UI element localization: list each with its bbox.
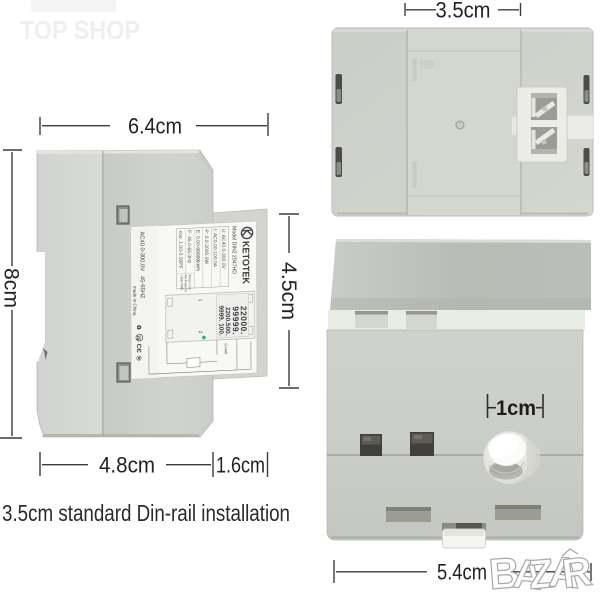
svg-text:1: 1 xyxy=(197,299,203,302)
svg-text:Ⓜ: Ⓜ xyxy=(135,356,142,361)
svg-text:U: AC40.0-300.0V: U: AC40.0-300.0V xyxy=(220,228,226,269)
svg-text:99999.: 99999. xyxy=(231,306,241,335)
svg-text:P: 0.0-3000.0W: P: 0.0-3000.0W xyxy=(203,229,209,264)
svg-text:25: 25 xyxy=(135,335,141,341)
svg-text:4.5cm: 4.5cm xyxy=(277,262,300,320)
svg-text:I: AC0.00-100.0A: I: AC0.00-100.0A xyxy=(212,229,218,268)
svg-text:1cm: 1cm xyxy=(496,397,536,420)
svg-text:8cm: 8cm xyxy=(0,268,23,308)
svg-text:R: R xyxy=(559,548,594,597)
svg-text:9999. 100.: 9999. 100. xyxy=(217,305,224,336)
svg-text:made in China: made in China xyxy=(132,286,137,316)
svg-text:♻: ♻ xyxy=(135,325,142,331)
svg-text:4.8cm: 4.8cm xyxy=(99,453,155,478)
svg-text:E: 0.00-99999kWh: E: 0.00-99999kWh xyxy=(194,230,200,272)
svg-text:TOP SHOP: TOP SHOP xyxy=(20,15,140,45)
svg-text:F: 45.0-65.0Hz: F: 45.0-65.0Hz xyxy=(186,230,192,264)
svg-text:5.4cm: 5.4cm xyxy=(437,560,487,585)
svg-text:CЄ: CЄ xyxy=(135,344,142,354)
svg-text:3.5cm standard Din-rail instal: 3.5cm standard Din-rail installation xyxy=(2,500,290,526)
svg-text:Model DIN2 2047HD: Model DIN2 2047HD xyxy=(231,226,237,274)
svg-text:(Load): (Load) xyxy=(224,343,228,354)
svg-text:cos: 1.00-0.00PF: cos: 1.00-0.00PF xyxy=(177,231,183,269)
svg-text:6.4cm: 6.4cm xyxy=(128,114,182,139)
svg-text:3.5cm: 3.5cm xyxy=(436,0,491,23)
svg-text:KETOTEK: KETOTEK xyxy=(240,241,251,285)
svg-text:clear kWh: clear kWh xyxy=(180,275,184,290)
svg-text:2: 2 xyxy=(197,331,203,334)
svg-text:1.6cm: 1.6cm xyxy=(216,453,265,478)
svg-text:AC40.0-300.0V 45-65HZ: AC40.0-300.0V 45-65HZ xyxy=(139,231,145,299)
